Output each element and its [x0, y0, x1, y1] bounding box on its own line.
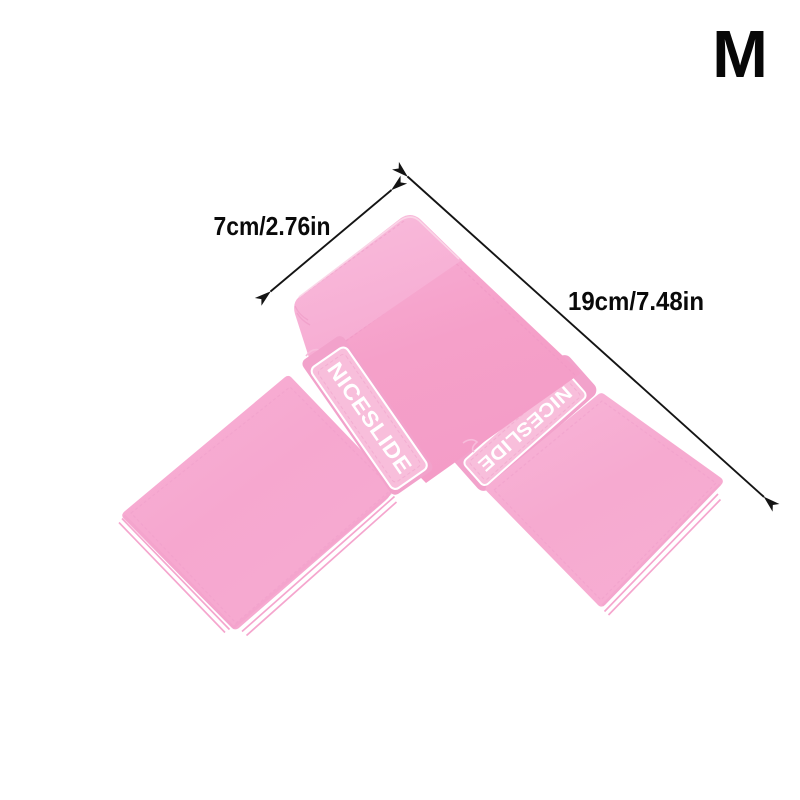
svg-text:19cm/7.48in: 19cm/7.48in [568, 286, 704, 316]
svg-text:7cm/2.76in: 7cm/2.76in [214, 211, 331, 241]
svg-text:M: M [712, 17, 768, 92]
